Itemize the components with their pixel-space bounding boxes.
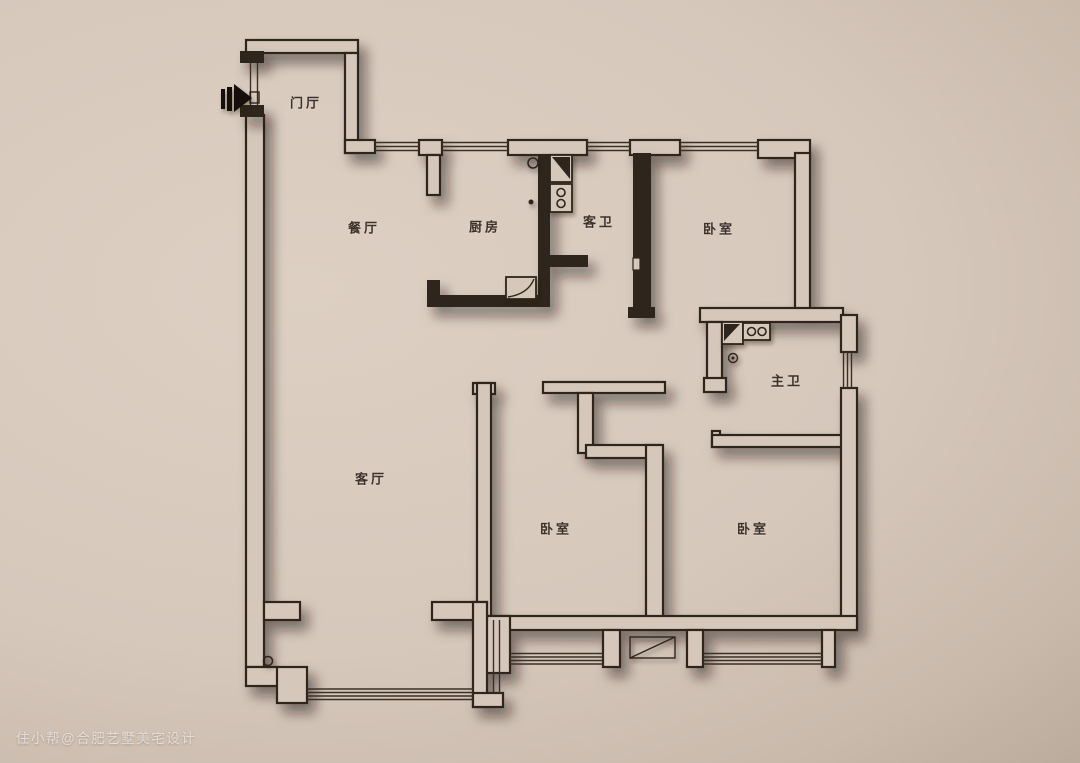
wall	[700, 308, 843, 322]
wall	[473, 693, 503, 707]
wall	[628, 307, 655, 318]
wall	[712, 435, 843, 447]
wall	[646, 445, 663, 628]
wall	[841, 315, 857, 352]
ac-platform-icon	[630, 637, 675, 658]
floorplan-canvas: 门厅 餐厅 厨房 客卫 卧室 主卫 客厅 卧室 卧室 住小帮@合肥艺墅美宅设计	[0, 0, 1080, 763]
wall	[550, 255, 588, 267]
wall	[543, 382, 665, 393]
room-label-guest-bathroom: 客卫	[583, 212, 615, 231]
room-label-living-room: 客厅	[355, 469, 387, 488]
entry-door	[251, 63, 258, 105]
watermark-text: 住小帮@合肥艺墅美宅设计	[16, 727, 196, 747]
gas-point-icon	[528, 158, 538, 168]
wall	[822, 630, 835, 667]
room-label-bedroom-bottom-mid: 卧室	[540, 519, 572, 538]
wall	[508, 140, 587, 155]
wall	[603, 630, 620, 667]
wall	[687, 630, 703, 667]
wall	[246, 115, 264, 667]
wall	[704, 378, 726, 392]
wall	[240, 105, 264, 117]
door-frame-notch	[633, 258, 640, 270]
wall	[473, 602, 487, 707]
window-master-bath	[844, 352, 852, 388]
fixtures-group	[221, 84, 770, 666]
room-label-bedroom-top-right: 卧室	[703, 219, 735, 238]
wall	[477, 383, 491, 616]
window-top-2	[442, 143, 508, 151]
window-living-room	[307, 689, 473, 700]
wall	[538, 155, 550, 307]
basin-icon	[743, 323, 770, 340]
window-bedroom-top-right	[680, 143, 758, 151]
wall	[795, 153, 810, 315]
wall	[277, 667, 307, 703]
wall	[630, 140, 680, 155]
walls-group	[246, 40, 857, 707]
kitchen-sink-icon	[506, 277, 536, 299]
room-label-master-bathroom: 主卫	[771, 371, 803, 390]
wall	[707, 322, 722, 380]
wall	[427, 155, 440, 195]
wall	[240, 51, 264, 63]
floorplan-drawing	[0, 0, 1080, 763]
wall	[264, 602, 300, 620]
room-label-entry-hall: 门厅	[290, 93, 322, 112]
window-bedroom-bottom-mid	[510, 654, 603, 665]
wall	[246, 667, 278, 686]
wall	[419, 140, 442, 155]
wall	[345, 140, 375, 153]
basin-icon	[550, 184, 572, 212]
window-top-3	[587, 143, 630, 151]
room-label-bedroom-bottom-right: 卧室	[737, 519, 769, 538]
toilet-icon	[550, 155, 572, 182]
floor-drain-icon	[529, 200, 534, 205]
window-top-1	[375, 143, 419, 151]
room-label-dining-room: 餐厅	[348, 218, 380, 237]
wall	[345, 53, 358, 153]
wall	[841, 388, 857, 630]
wall	[633, 153, 651, 307]
wall	[477, 616, 857, 630]
room-label-kitchen: 厨房	[469, 217, 501, 236]
floor-drain-icon	[729, 354, 738, 363]
partition-walls-group	[240, 51, 655, 318]
window-bedroom-bottom-right	[703, 654, 822, 665]
toilet-icon	[722, 322, 743, 344]
